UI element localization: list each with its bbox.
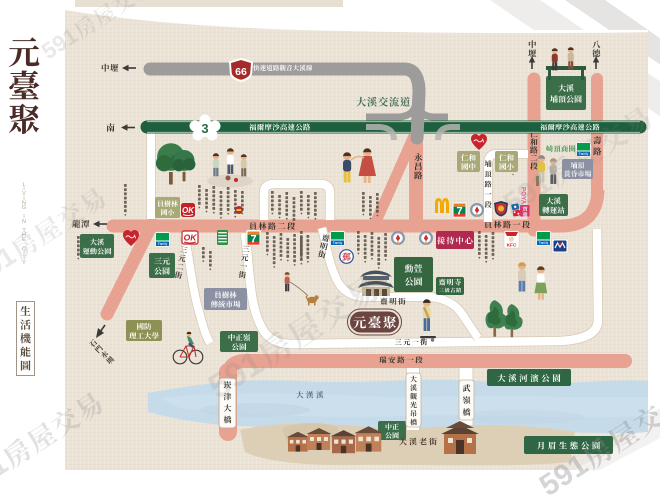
svg-text:OK: OK [182,206,195,215]
svg-text:Family: Family [158,242,168,246]
svg-text:7: 7 [250,234,256,246]
svg-text:KFC: KFC [507,243,517,249]
svg-text:Family: Family [333,241,343,245]
svg-text:G: G [22,205,26,211]
svg-text:66: 66 [235,66,247,78]
svg-text:OK: OK [184,233,198,243]
svg-text:3: 3 [201,121,208,136]
svg-text:Y: Y [22,260,26,266]
svg-text:N: N [22,219,26,225]
svg-text:Family: Family [539,241,549,245]
svg-text:7: 7 [456,206,462,218]
